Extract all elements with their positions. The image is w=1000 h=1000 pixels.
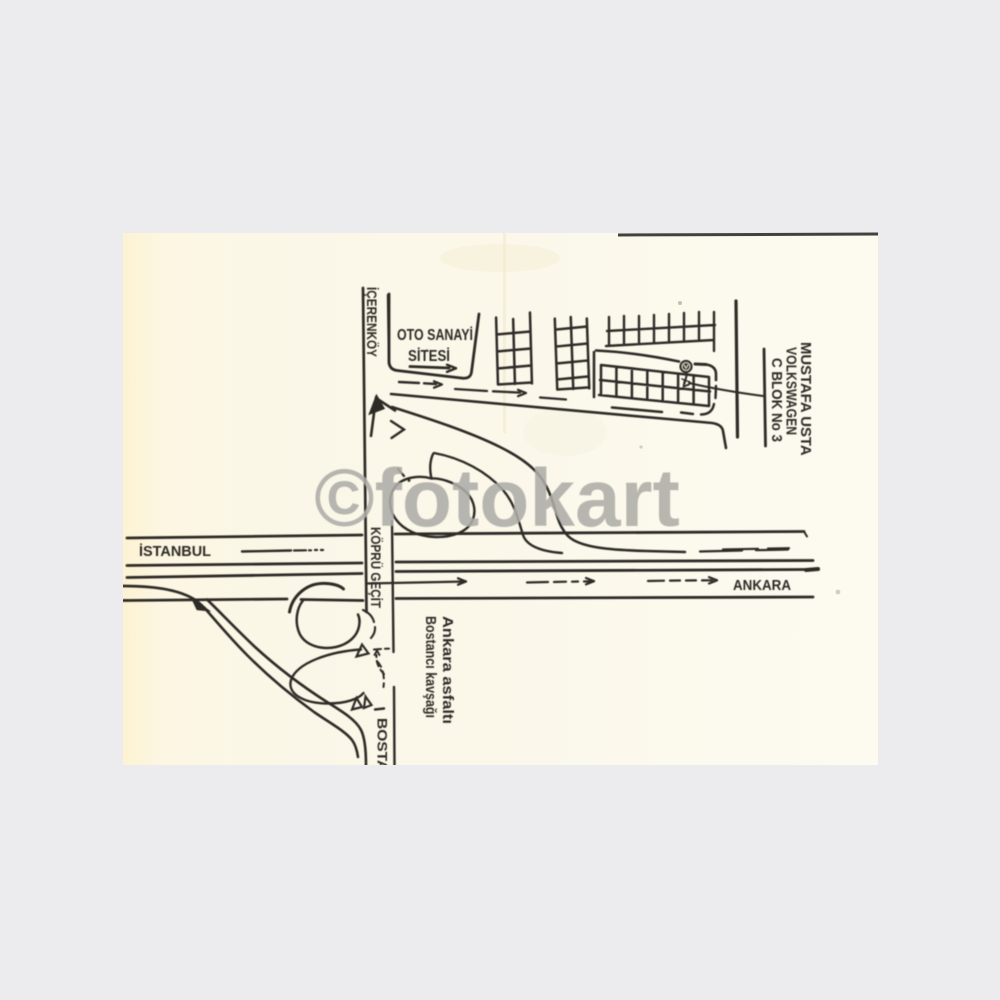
svg-text:OTO SANAYİ: OTO SANAYİ [397, 326, 473, 344]
svg-text:ANKARA: ANKARA [733, 577, 791, 594]
svg-text:İÇERENKÖY: İÇERENKÖY [364, 287, 380, 358]
svg-text:SİTESİ: SİTESİ [408, 347, 450, 365]
svg-text:Ankara asfaltı Bostancı: Ankara asfaltı Bostancı kavşağı [422, 616, 456, 728]
svg-text:İSTANBUL: İSTANBUL [139, 543, 211, 560]
svg-text:BOSTANCI: BOSTANCI [375, 718, 390, 798]
svg-text:©fotokart: ©fotokart [314, 453, 680, 544]
